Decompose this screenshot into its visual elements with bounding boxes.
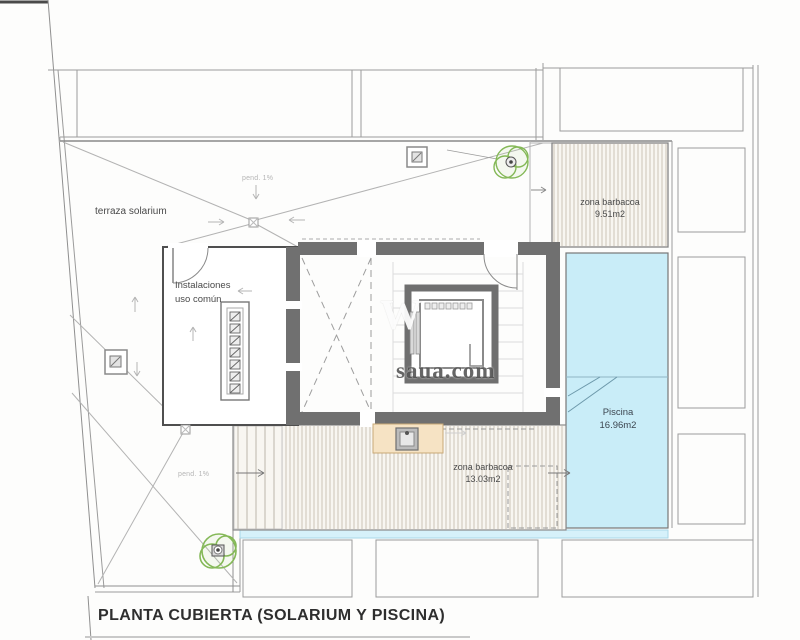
roof-vent-icon [407,147,427,167]
piscina-label: Piscina [568,408,668,419]
piscina-area: 16.96m2 [568,421,668,432]
plant-symbol-icon [200,534,236,568]
roof-vent-icon [105,350,127,374]
floor-plan-sheet: terraza solarium Instalaciones uso común… [0,0,800,640]
instalaciones-room [163,243,302,425]
barbecue-counter [373,424,443,453]
barbacoa-top-area: 9.51m2 [560,209,660,219]
slope-note-top: pend. 1% [242,175,273,183]
barbacoa-bottom-label: zona barbacoa [433,462,533,472]
watermark-ghost: W [380,292,422,340]
barbacoa-bottom-area: 13.03m2 [433,474,533,484]
terraza-solarium-label: terraza solarium [95,206,167,218]
plan-title: PLANTA CUBIERTA (SOLARIUM Y PISCINA) [98,607,445,625]
instalaciones-label-line2: uso común [175,295,221,306]
watermark-text: saua.com [396,358,495,384]
roof-drain-icon [249,218,258,227]
plant-symbol-icon [447,146,528,178]
barbacoa-top-label: zona barbacoa [560,197,660,207]
instalaciones-label-line1: Instalaciones [175,281,230,292]
roof-drain-icon [181,425,190,434]
slope-note-left: pend. 1% [178,471,209,479]
skylight-x-brace [302,258,371,412]
